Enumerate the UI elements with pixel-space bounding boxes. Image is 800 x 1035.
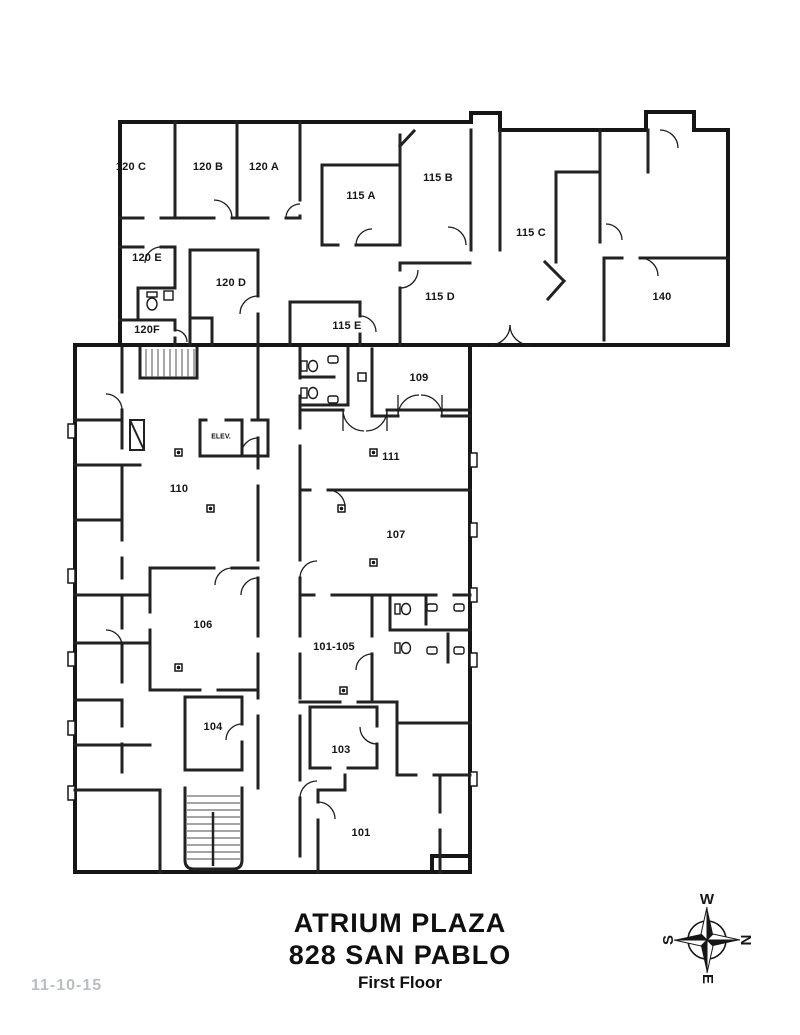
door-swing-arcs	[106, 130, 678, 819]
room-label-120-b: 120 B	[193, 161, 223, 173]
room-label-110: 110	[170, 483, 188, 495]
room-label-120-f: 120F	[134, 324, 160, 336]
room-label-115-a: 115 A	[346, 190, 375, 202]
stair-treads-upper	[146, 349, 194, 377]
interior-walls-upper-wing	[120, 122, 728, 345]
compass-star	[674, 907, 740, 973]
compass-rose-icon: W N E S	[661, 894, 753, 986]
room-label-120-d: 120 D	[216, 277, 246, 289]
room-label-101-105: 101-105	[313, 641, 355, 653]
room-label-106: 106	[194, 619, 213, 631]
floor-plan-drawing	[0, 0, 800, 1035]
compass-letter-w: W	[700, 894, 715, 908]
room-label-115-b: 115 B	[423, 172, 453, 184]
room-label-109: 109	[410, 372, 429, 384]
date-note: 11-10-15	[31, 977, 102, 995]
room-label-115-c: 115 C	[516, 227, 546, 239]
room-label-120-a: 120 A	[249, 161, 279, 173]
room-label-107: 107	[387, 529, 406, 541]
room-label-elevator: ELEV.	[211, 434, 231, 441]
room-label-120-c: 120 C	[116, 161, 146, 173]
compass-letter-e: E	[699, 974, 716, 984]
stair-treads-lower	[187, 796, 240, 866]
room-label-101: 101	[352, 827, 371, 839]
shaft-column	[130, 420, 144, 450]
room-label-104: 104	[204, 721, 223, 733]
room-label-103: 103	[332, 744, 351, 756]
room-label-111: 111	[382, 451, 400, 463]
room-label-120-e: 120 E	[132, 252, 162, 264]
room-label-140: 140	[653, 291, 672, 303]
floor-plan-page: 120 C 120 B 120 A 115 A 115 B 115 C 120 …	[0, 0, 800, 1035]
compass-letter-s: S	[661, 935, 677, 945]
room-label-115-e: 115 E	[332, 320, 361, 332]
compass-letter-n: N	[737, 935, 753, 946]
room-label-115-d: 115 D	[425, 291, 455, 303]
